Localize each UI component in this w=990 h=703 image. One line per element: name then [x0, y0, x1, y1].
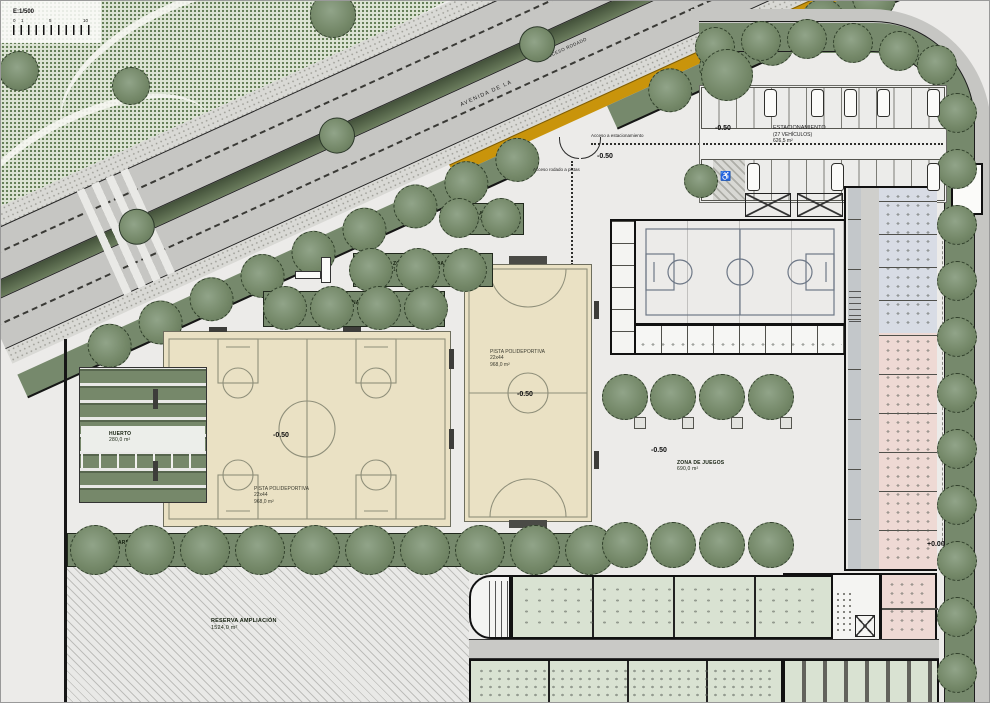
tree — [699, 522, 745, 568]
locker-fixtures — [638, 340, 842, 352]
tree-planter — [731, 417, 743, 429]
court-bench — [153, 461, 158, 481]
scale-bar — [13, 25, 93, 35]
tree — [400, 525, 450, 575]
tree-planter — [780, 417, 792, 429]
court-name: PISTA POLIDEPORTIVA — [254, 486, 309, 492]
reserve-area-value: 1524,0 m² — [211, 625, 238, 631]
tree — [684, 164, 718, 198]
parking-level-west: -0.50 — [715, 125, 731, 132]
sport-equipment — [321, 257, 331, 283]
court-name: PISTA POLIDEPORTIVA — [490, 349, 545, 355]
tree — [125, 525, 175, 575]
wing-stairs — [849, 288, 861, 322]
tree — [748, 374, 794, 420]
tree — [345, 525, 395, 575]
tree — [0, 51, 39, 91]
court-bench — [209, 327, 227, 332]
tree — [937, 93, 977, 133]
tree — [937, 429, 977, 469]
tree — [896, 0, 954, 3]
tree — [937, 373, 977, 413]
tree — [741, 21, 781, 61]
court-bench — [449, 349, 454, 369]
elevator — [855, 615, 875, 637]
tree — [443, 248, 487, 292]
court-futsal-level: -0.50 — [517, 391, 533, 398]
tree — [937, 149, 977, 189]
tree — [701, 49, 753, 101]
wing-classrooms-north — [879, 188, 937, 333]
bike-shelter — [797, 193, 843, 217]
court-futsal-label: PISTA POLIDEPORTIVA 22x44 968,0 m² — [490, 349, 545, 368]
tree — [937, 205, 977, 245]
stair-hall — [469, 575, 511, 639]
playground-level: -0.50 — [651, 447, 667, 454]
dining-hall — [783, 659, 939, 703]
right-wing — [844, 186, 937, 571]
court-dims: 22x44 — [254, 492, 268, 498]
tree — [833, 23, 873, 63]
parking-access-label: Acceso a estacionamiento — [591, 133, 644, 138]
tree — [917, 45, 957, 85]
car — [844, 89, 857, 117]
reserve-area — [67, 567, 469, 703]
tree — [879, 31, 919, 71]
car — [811, 89, 824, 117]
tree — [650, 374, 696, 420]
parking-capacity: (27 VEHÍCULOS) — [773, 132, 812, 138]
court-dims: 22x44 — [490, 355, 504, 361]
scale-tick-1: 1 — [21, 18, 24, 23]
tree — [937, 485, 977, 525]
car — [927, 89, 940, 117]
tree — [357, 286, 401, 330]
court-area: 968,0 m² — [490, 362, 510, 368]
court-area: 968,0 m² — [254, 499, 274, 505]
tree — [748, 522, 794, 568]
court-bench — [449, 429, 454, 449]
wheelchair-icon: ♿ — [720, 171, 731, 182]
tree — [310, 286, 354, 330]
tree — [349, 248, 393, 292]
gym-annex-rooms — [610, 219, 636, 355]
gym-court-markings — [634, 219, 846, 325]
scale-tick-10: 10 — [83, 18, 88, 23]
tree — [263, 286, 307, 330]
court-bench — [343, 327, 361, 332]
scale-tick-5: 5 — [49, 18, 52, 23]
tree — [396, 248, 440, 292]
stairs — [489, 581, 509, 637]
courts-access-label: Acceso rodado a pistas — [533, 167, 580, 172]
tree — [650, 522, 696, 568]
tree — [937, 261, 977, 301]
entrance-level: -0.50 — [597, 153, 613, 160]
tree — [455, 525, 505, 575]
desk-clusters — [520, 584, 824, 630]
tables — [887, 580, 930, 636]
classrooms-lower-row — [469, 659, 783, 703]
car — [764, 89, 777, 117]
car — [747, 163, 760, 191]
tree — [787, 19, 827, 59]
tree-planter — [634, 417, 646, 429]
tree — [180, 525, 230, 575]
path-to-courts — [571, 161, 573, 265]
scale-tick-0: 0 — [13, 18, 16, 23]
parking-label: ESTACIONAMIENTO (27 VEHÍCULOS) 626,5 m² — [773, 125, 826, 144]
tree — [290, 525, 340, 575]
tree — [602, 522, 648, 568]
classrooms-upper-row — [511, 575, 833, 639]
playground-label: ZONA DE JUEGOS 690,0 m² — [677, 460, 724, 472]
tree — [112, 67, 150, 105]
tree — [602, 374, 648, 420]
parking-title: ESTACIONAMIENTO — [773, 125, 826, 131]
goal-north — [509, 256, 547, 264]
small-rooms-pink — [881, 573, 937, 643]
court-bench — [594, 451, 599, 469]
reserve-label: RESERVA AMPLIACIÓN 1524,0 m² — [211, 618, 277, 631]
bike-shelter — [745, 193, 791, 217]
gym-locker-rooms — [634, 325, 846, 355]
court-multi-label: PISTA POLIDEPORTIVA 22x44 968,0 m² — [254, 486, 309, 505]
bottom-corridor — [469, 639, 939, 659]
tree — [439, 198, 479, 238]
wing-classrooms-south — [879, 333, 937, 569]
court-multi-level: -0.50 — [273, 432, 289, 439]
sport-equipment — [295, 271, 321, 279]
scale-label: E:1/500 — [13, 9, 34, 15]
tree — [235, 525, 285, 575]
tree — [404, 286, 448, 330]
parking-area: 626,5 m² — [773, 138, 793, 144]
tree — [937, 597, 977, 637]
reserve-name: RESERVA AMPLIACIÓN — [211, 618, 277, 624]
playground-area: 690,0 m² — [677, 466, 698, 472]
tree — [699, 374, 745, 420]
tree-planter — [682, 417, 694, 429]
tree — [937, 317, 977, 357]
wing-utility-rooms — [848, 188, 861, 569]
desks — [883, 337, 933, 565]
desks — [883, 192, 933, 329]
orchard-gap — [81, 426, 205, 452]
wing-corridor — [861, 188, 879, 569]
orchard-rows — [81, 454, 205, 468]
court-bench — [153, 389, 158, 409]
tree — [937, 653, 977, 693]
orchard-label: HUERTO 280,0 m² — [109, 431, 131, 443]
car — [877, 89, 890, 117]
orchard-area: 280,0 m² — [109, 437, 130, 443]
desk-rows — [477, 667, 775, 698]
court-bench — [594, 301, 599, 319]
car — [831, 163, 844, 191]
site-plan: AVENIDA DE LA ACCESO RODADO Acceso a est… — [0, 0, 990, 703]
tree — [70, 525, 120, 575]
car — [927, 163, 940, 191]
tree — [510, 525, 560, 575]
tree — [937, 541, 977, 581]
tree — [481, 198, 521, 238]
orchard-plots — [79, 367, 207, 503]
